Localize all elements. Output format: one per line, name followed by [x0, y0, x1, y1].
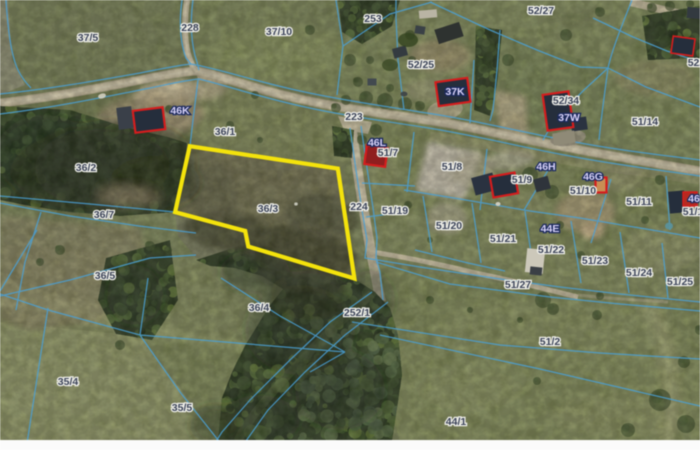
svg-text:223: 223: [345, 111, 363, 123]
svg-text:51/1: 51/1: [683, 206, 700, 218]
svg-text:36/1: 36/1: [215, 126, 236, 138]
svg-text:51/24: 51/24: [626, 267, 652, 279]
svg-text:51/14: 51/14: [632, 116, 658, 128]
svg-text:228: 228: [181, 22, 199, 34]
svg-text:46: 46: [688, 193, 700, 205]
svg-text:35/5: 35/5: [172, 402, 193, 414]
svg-text:35/4: 35/4: [58, 376, 79, 388]
svg-text:37K: 37K: [445, 86, 465, 98]
svg-text:44E: 44E: [541, 223, 560, 235]
svg-text:51/19: 51/19: [382, 205, 408, 217]
svg-text:51/2: 51/2: [540, 336, 561, 348]
svg-text:52/25: 52/25: [408, 59, 434, 71]
svg-text:46H: 46H: [536, 161, 555, 173]
svg-text:51/9: 51/9: [512, 174, 533, 186]
svg-text:46K: 46K: [170, 105, 190, 117]
svg-text:51/11: 51/11: [626, 196, 652, 208]
svg-text:51/25: 51/25: [667, 276, 693, 288]
svg-text:37/10: 37/10: [266, 26, 292, 38]
svg-text:46L: 46L: [368, 137, 387, 149]
svg-text:44/1: 44/1: [446, 416, 467, 428]
svg-text:52/: 52/: [688, 57, 700, 69]
svg-text:51/23: 51/23: [582, 255, 608, 267]
svg-text:36/4: 36/4: [249, 302, 270, 314]
svg-text:51/8: 51/8: [442, 161, 463, 173]
svg-text:51/27: 51/27: [505, 279, 531, 291]
svg-text:36/5: 36/5: [95, 270, 116, 282]
svg-text:52/34: 52/34: [553, 95, 579, 107]
svg-text:36/3: 36/3: [258, 203, 279, 215]
svg-text:252/1: 252/1: [344, 307, 370, 319]
svg-text:37W: 37W: [558, 112, 580, 124]
svg-text:52/27: 52/27: [528, 5, 554, 17]
svg-text:51/10: 51/10: [570, 185, 596, 197]
svg-text:51/21: 51/21: [490, 233, 516, 245]
svg-text:253: 253: [364, 13, 382, 25]
svg-text:51/20: 51/20: [436, 220, 462, 232]
svg-text:224: 224: [350, 201, 368, 213]
svg-text:46G: 46G: [583, 171, 603, 183]
svg-text:36/7: 36/7: [94, 209, 115, 221]
svg-text:36/2: 36/2: [76, 162, 97, 174]
svg-text:51/22: 51/22: [538, 244, 564, 256]
svg-text:37/5: 37/5: [78, 32, 99, 44]
